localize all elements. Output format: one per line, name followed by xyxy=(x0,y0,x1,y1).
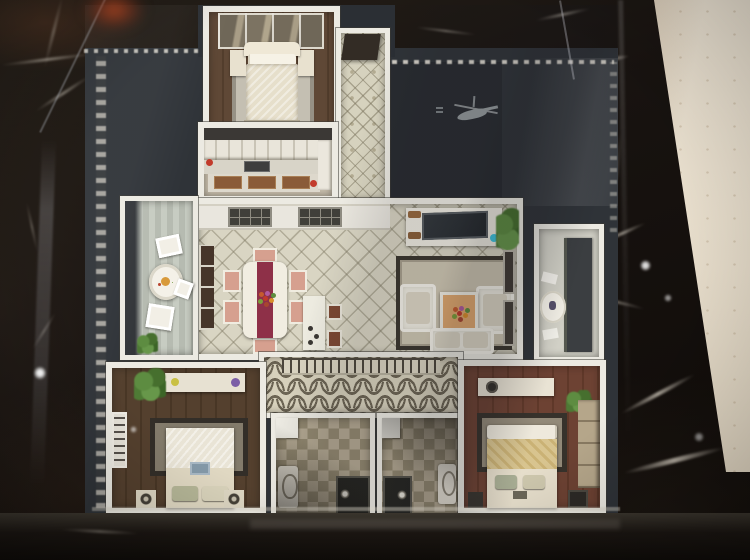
ceiling-vent-grid xyxy=(298,207,342,227)
centerpiece-flowers xyxy=(263,296,268,301)
glass-shadow xyxy=(276,418,370,513)
platform-front-edge xyxy=(92,507,620,511)
living-window xyxy=(503,300,515,346)
room-left-balcony xyxy=(120,196,198,360)
bed xyxy=(487,425,557,508)
fridge xyxy=(318,140,332,190)
dining-chair xyxy=(289,270,307,292)
base-shade-left xyxy=(390,62,502,204)
pillow xyxy=(172,486,198,501)
dining-chair xyxy=(223,270,241,292)
room-bedroom-2 xyxy=(106,362,266,514)
bed-item xyxy=(513,491,527,499)
table-food xyxy=(161,277,170,286)
table-item xyxy=(549,301,556,310)
bedroom-plant xyxy=(134,368,166,401)
side-table xyxy=(568,490,588,508)
silhouette-mark xyxy=(436,107,443,109)
dining-chair xyxy=(223,300,241,324)
base-edge-specks-topright xyxy=(392,60,614,64)
light-reflection-dot xyxy=(34,366,46,380)
shutter-window xyxy=(112,412,127,468)
living-plant xyxy=(496,206,519,252)
balcony-chair-mark xyxy=(542,328,559,340)
light-reflection-dot xyxy=(664,294,672,302)
light-reflection-dot xyxy=(130,426,137,433)
armchair-cushion xyxy=(406,292,430,324)
dark-decor-circle xyxy=(486,381,498,393)
kitchen-wall-dark xyxy=(204,128,332,140)
dining-window xyxy=(199,245,214,330)
pillow xyxy=(495,475,517,489)
red-pot xyxy=(310,180,317,187)
room-bathroom-1 xyxy=(271,413,375,518)
island-sink-dot xyxy=(314,334,319,339)
island-sink-dot xyxy=(308,326,313,331)
base-sheen-right xyxy=(498,58,618,206)
pillow xyxy=(523,475,545,489)
room-entry-corridor xyxy=(336,28,390,204)
cabinet-wood-panel xyxy=(282,176,310,189)
base-edge-specks-left xyxy=(96,56,106,508)
coffee-table xyxy=(440,292,478,332)
tv-screen xyxy=(422,211,488,240)
balcony-chair-mark xyxy=(541,271,558,284)
dining-table xyxy=(243,262,287,338)
duvet xyxy=(246,64,298,122)
room-dining-living xyxy=(193,198,523,360)
microwave xyxy=(244,161,270,172)
balcony-plant xyxy=(137,333,158,354)
table-front-reflection xyxy=(250,519,620,529)
bed xyxy=(246,42,298,132)
base-edge-specks-topleft xyxy=(84,49,206,53)
red-jar xyxy=(206,159,213,166)
glass-shadow xyxy=(382,418,458,513)
light-reflection-dot xyxy=(694,432,704,442)
island-sink-dot xyxy=(308,340,313,345)
tray-item xyxy=(190,462,210,475)
coffee-table-flowers xyxy=(457,311,462,316)
room-kitchen xyxy=(198,122,338,202)
upper-cabinets xyxy=(204,140,320,160)
light-reflection-dot xyxy=(640,260,651,271)
dining-chair xyxy=(253,248,277,263)
bar-stool xyxy=(327,304,342,320)
gold-decor xyxy=(408,211,421,218)
kitchen-island xyxy=(303,296,325,350)
room-hallway xyxy=(259,352,463,418)
dresser xyxy=(478,378,554,396)
room-bedroom-3 xyxy=(458,360,606,514)
nightstand xyxy=(468,492,483,508)
sofa xyxy=(430,328,494,354)
gold-decor xyxy=(408,232,421,239)
living-window xyxy=(503,250,515,294)
balcony-wall-shadow xyxy=(125,201,143,355)
photo-stage xyxy=(0,0,750,560)
nightstand-ring xyxy=(227,492,241,506)
ceiling-vent-grid xyxy=(228,207,272,227)
purple-decor-dot xyxy=(231,378,240,387)
dresser xyxy=(165,373,245,392)
room-right-balcony xyxy=(534,224,604,362)
entrance-door xyxy=(341,34,381,60)
balustrade xyxy=(282,360,440,373)
balcony-chair xyxy=(155,234,183,259)
nightstand xyxy=(298,50,314,76)
cabinet-wood-panel xyxy=(248,176,276,189)
cabinet-wood-panel xyxy=(214,176,242,189)
balcony-table-small xyxy=(540,291,566,323)
silhouette-antenna xyxy=(473,96,476,107)
yellow-decor-dot xyxy=(171,378,179,386)
sofa-cushion xyxy=(463,332,488,348)
sofa-cushion xyxy=(435,332,460,348)
nightstand-ring xyxy=(139,492,153,506)
armchair xyxy=(400,284,436,332)
tv-console xyxy=(406,208,502,246)
pillows xyxy=(487,425,557,439)
base-edge-specks-right xyxy=(610,62,617,232)
balcony-dark-strip xyxy=(564,238,592,352)
bar-stool xyxy=(327,330,342,348)
wardrobe xyxy=(578,400,600,488)
balcony-chair xyxy=(145,303,174,331)
nightstand xyxy=(136,490,156,508)
duvet-yellow xyxy=(487,439,557,469)
room-bathroom-2 xyxy=(377,413,463,518)
helicopter-silhouette xyxy=(440,95,506,131)
nightstand xyxy=(224,490,244,508)
orange-reflection xyxy=(82,0,146,30)
